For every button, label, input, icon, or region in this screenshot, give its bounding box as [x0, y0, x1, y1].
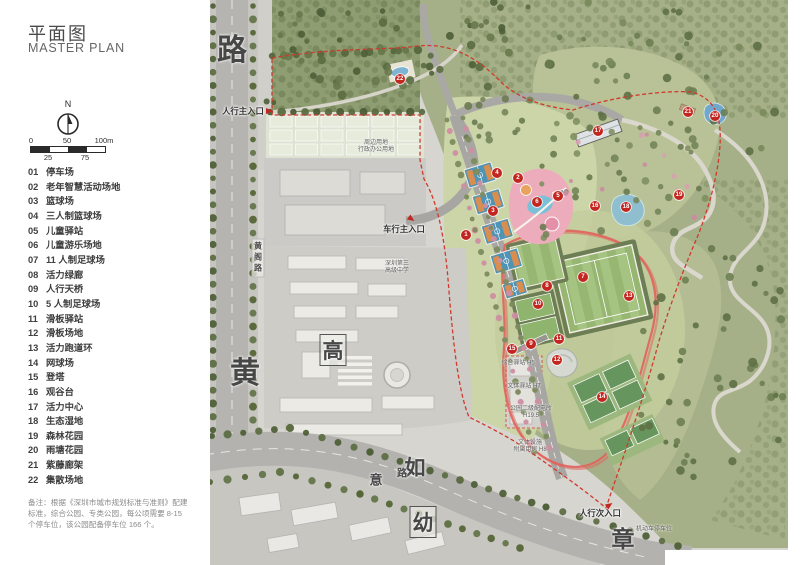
scale-bar: 0 50 100m 25 75: [30, 146, 104, 151]
legend-number: 22: [28, 473, 46, 488]
skate-park: [547, 349, 577, 377]
legend-number: 05: [28, 224, 46, 239]
legend-number: 10: [28, 297, 46, 312]
legend-number: 21: [28, 458, 46, 473]
legend-label: 11 人制足球场: [46, 253, 105, 268]
legend-label: 儿童驿站: [46, 224, 83, 239]
legend-label: 登塔: [46, 370, 65, 385]
scale-tick: 75: [81, 153, 89, 162]
legend-number: 16: [28, 385, 46, 400]
legend-label: 网球场: [46, 356, 74, 371]
scale-tick: 50: [63, 136, 71, 145]
legend-label: 滑板驿站: [46, 312, 83, 327]
legend-label: 活力跑道环: [46, 341, 93, 356]
legend-number: 08: [28, 268, 46, 283]
master-plan-sheet: 平面图 MASTER PLAN N 0 50 100m 25 75 01停车场0…: [0, 0, 800, 565]
legend-item: 16观谷台: [28, 385, 120, 400]
legend-label: 活力绿廊: [46, 268, 83, 283]
legend-item: 18生态湿地: [28, 414, 120, 429]
legend-number: 02: [28, 180, 46, 195]
legend-item: 04三人制篮球场: [28, 209, 120, 224]
legend-label: 雨塘花园: [46, 443, 83, 458]
legend-item: 15登塔: [28, 370, 120, 385]
legend-label: 篮球场: [46, 194, 74, 209]
legend-item: 06儿童游乐场地: [28, 238, 120, 253]
legend-item: 01停车场: [28, 165, 120, 180]
eco-wetland: [611, 194, 644, 225]
legend-item: 19森林花园: [28, 429, 120, 444]
legend-label: 活力中心: [46, 400, 83, 415]
legend-item: 22集散场地: [28, 473, 120, 488]
scale-tick: 0: [29, 136, 33, 145]
legend-number: 12: [28, 326, 46, 341]
legend-list: 01停车场02老年智慧活动场地03篮球场04三人制篮球场05儿童驿站06儿童游乐…: [28, 165, 120, 487]
legend-number: 03: [28, 194, 46, 209]
legend-label: 森林花园: [46, 429, 83, 444]
legend-item: 21紫藤廊架: [28, 458, 120, 473]
legend-item: 08活力绿廊: [28, 268, 120, 283]
legend-number: 17: [28, 400, 46, 415]
legend-item: 17活力中心: [28, 400, 120, 415]
legend-label: 观谷台: [46, 385, 74, 400]
legend-number: 04: [28, 209, 46, 224]
children-playground: [509, 169, 573, 244]
legend-label: 紫藤廊架: [46, 458, 83, 473]
legend-item: 02老年智慧活动场地: [28, 180, 120, 195]
legend-item: 05儿童驿站: [28, 224, 120, 239]
legend-number: 07: [28, 253, 46, 268]
note-text: 备注：根据《深圳市城市规划标准与准则》配建标准，综合公园、专类公园，每公顷需要 …: [28, 498, 210, 530]
legend-item: 20雨塘花园: [28, 443, 120, 458]
legend-item: 13活力跑道环: [28, 341, 120, 356]
compass-n-label: N: [65, 99, 72, 109]
legend-number: 11: [28, 312, 46, 327]
legend-item: 14网球场: [28, 356, 120, 371]
legend-item: 0711 人制足球场: [28, 253, 120, 268]
legend-label: 滑板场地: [46, 326, 83, 341]
scale-tick: 100m: [95, 136, 114, 145]
legend-label: 人行天桥: [46, 282, 83, 297]
legend-number: 19: [28, 429, 46, 444]
legend-number: 14: [28, 356, 46, 371]
info-panel: 平面图 MASTER PLAN N 0 50 100m 25 75 01停车场0…: [0, 0, 210, 565]
legend-label: 停车场: [46, 165, 74, 180]
legend-label: 三人制篮球场: [46, 209, 102, 224]
legend-number: 13: [28, 341, 46, 356]
legend-number: 15: [28, 370, 46, 385]
legend-number: 06: [28, 238, 46, 253]
legend-item: 09人行天桥: [28, 282, 120, 297]
site-plan-map: 12345678910111213141516171819202122人行主入口…: [210, 0, 800, 565]
valley-lookout: [592, 205, 598, 211]
legend-label: 集散场地: [46, 473, 83, 488]
legend-item: 03篮球场: [28, 194, 120, 209]
page-subtitle: MASTER PLAN: [28, 41, 125, 55]
legend-label: 生态湿地: [46, 414, 83, 429]
legend-item: 105 人制足球场: [28, 297, 120, 312]
legend-label: 儿童游乐场地: [46, 238, 102, 253]
legend-number: 09: [28, 282, 46, 297]
scale-tick: 25: [44, 153, 52, 162]
legend-label: 5 人制足球场: [46, 297, 100, 312]
legend-label: 老年智慧活动场地: [46, 180, 120, 195]
legend-number: 20: [28, 443, 46, 458]
site-plan-drawing: [210, 0, 800, 565]
scale-bar-cells: [30, 146, 106, 153]
legend-number: 18: [28, 414, 46, 429]
legend-item: 12滑板场地: [28, 326, 120, 341]
legend-number: 01: [28, 165, 46, 180]
legend-item: 11滑板驿站: [28, 312, 120, 327]
